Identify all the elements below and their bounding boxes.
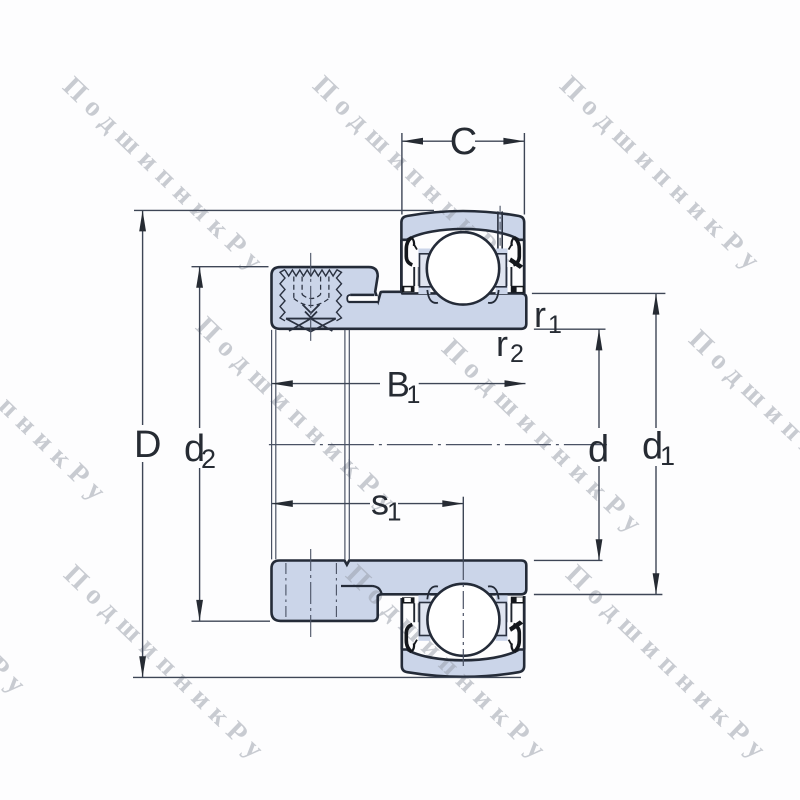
svg-text:1: 1	[548, 311, 562, 339]
svg-text:1: 1	[660, 441, 675, 471]
svg-text:2: 2	[201, 444, 216, 474]
svg-text:D: D	[134, 424, 161, 466]
svg-text:1: 1	[407, 381, 421, 409]
svg-text:C: C	[450, 121, 477, 163]
svg-text:1: 1	[387, 497, 401, 527]
svg-text:r: r	[534, 294, 546, 335]
svg-text:d: d	[588, 429, 609, 471]
svg-text:r: r	[496, 323, 508, 364]
svg-text:2: 2	[510, 340, 524, 368]
